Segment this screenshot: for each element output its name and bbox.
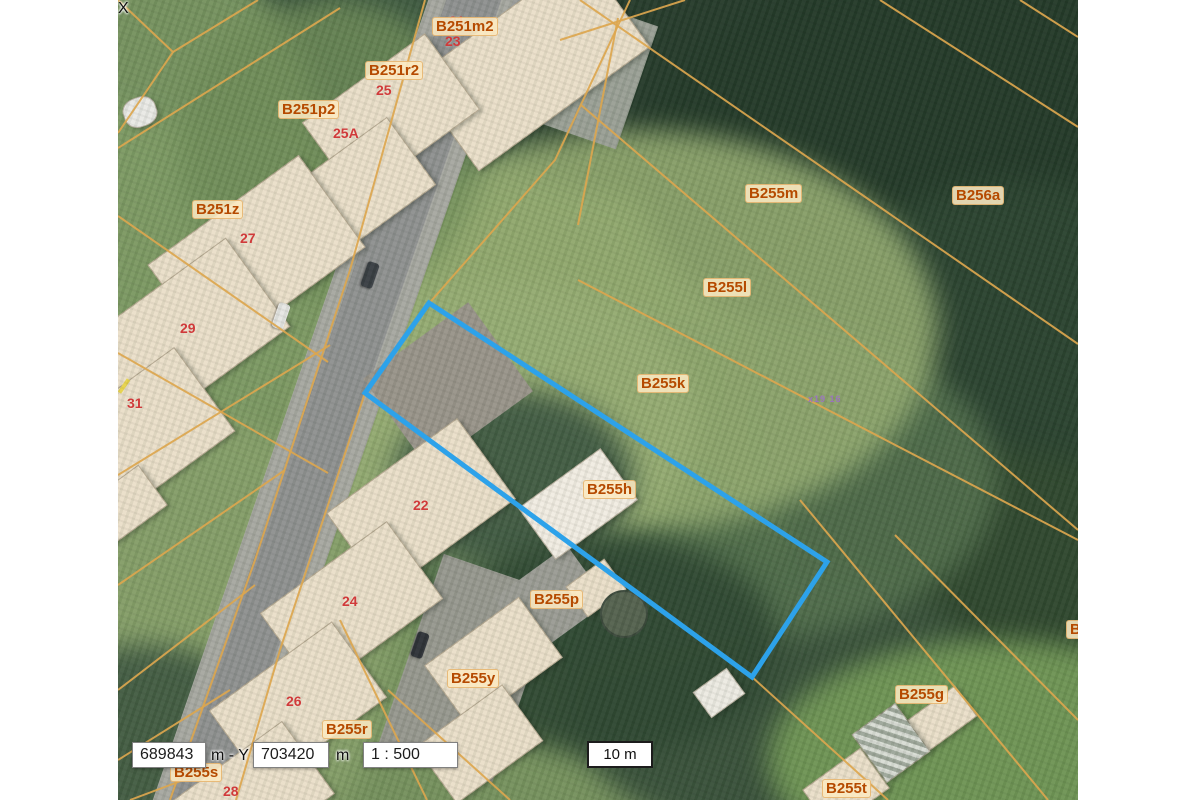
y-coordinate-input[interactable] <box>253 742 329 768</box>
parcel-label-b255y: B255y <box>447 669 499 688</box>
parcel-label-b256a: B256a <box>952 186 1004 205</box>
parcel-labels-layer: B251m2B251r2B251p2B251zB255mB256aB255lB2… <box>118 0 1078 800</box>
survey-point-label: x19 16 <box>808 394 842 404</box>
parcel-label-b255m: B255m <box>745 184 802 203</box>
parcel-label-b2: B2 <box>1066 620 1078 639</box>
parcel-label-b251z: B251z <box>192 200 243 219</box>
parcel-label-b255k: B255k <box>637 374 689 393</box>
parcel-label-b251p2: B251p2 <box>278 100 339 119</box>
parcel-label-b255r: B255r <box>322 720 372 739</box>
parcel-label-b255h: B255h <box>583 480 636 499</box>
page-root: 21232525A27293122242628 B251m2B251r2B251… <box>0 0 1200 800</box>
parcel-label-b255l: B255l <box>703 278 751 297</box>
map-canvas[interactable]: 21232525A27293122242628 B251m2B251r2B251… <box>118 0 1078 800</box>
parcel-label-b255t: B255t <box>822 779 871 798</box>
map-scale-input[interactable] <box>363 742 458 768</box>
parcel-label-b251r2: B251r2 <box>365 61 423 80</box>
x-coordinate-input[interactable] <box>132 742 206 768</box>
parcel-label-b255p: B255p <box>530 590 583 609</box>
parcel-label-b255g: B255g <box>895 685 948 704</box>
parcel-label-b251m2: B251m2 <box>432 17 498 36</box>
